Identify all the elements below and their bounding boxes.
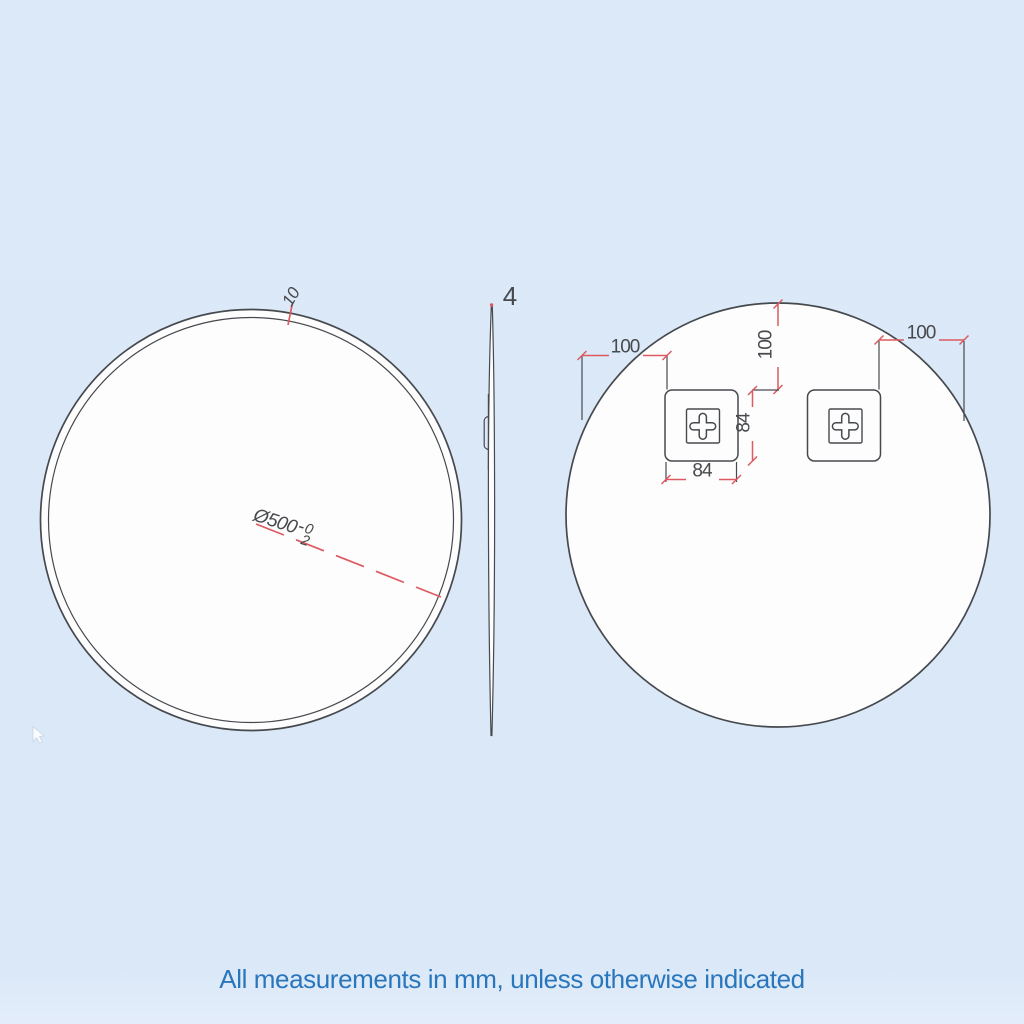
measurement-units-note: All measurements in mm, unless otherwise… [0,964,1024,995]
back-view [566,300,990,728]
mirror-edge-profile [488,307,494,736]
mouse-cursor [33,727,44,744]
drawing-linework [0,0,1024,1024]
bracket-height-label: 84 [735,413,754,432]
back-right-offset-label: 100 [907,324,936,343]
front-view [41,303,462,731]
thickness-tick [490,303,493,306]
mirror-back-circle [566,303,990,727]
side-view [484,303,494,735]
right-mounting-bracket [808,390,881,461]
back-left-offset-label: 100 [611,338,640,357]
left-mounting-bracket [665,390,738,461]
side-thickness-label: 4 [503,283,517,309]
back-top-offset-label: 100 [757,331,776,360]
bracket-profile-hook [484,417,488,450]
bracket-width-label: 84 [692,462,711,481]
technical-drawing-page: 10 Ø500 - 0 2 4 100 100 100 84 84 All me… [0,0,1024,1024]
